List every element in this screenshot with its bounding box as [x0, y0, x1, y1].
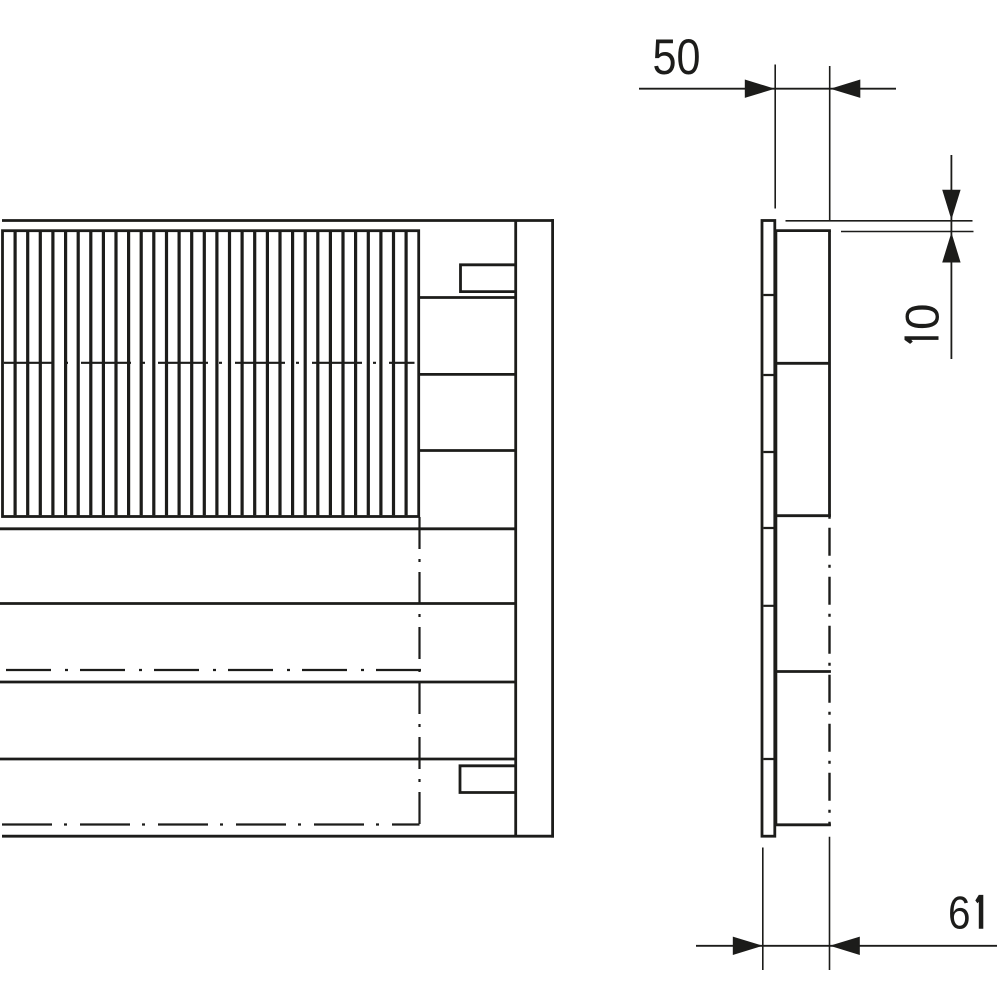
svg-text:6: 6: [948, 887, 971, 939]
svg-text:0: 0: [897, 304, 950, 331]
svg-text:50: 50: [653, 28, 701, 85]
